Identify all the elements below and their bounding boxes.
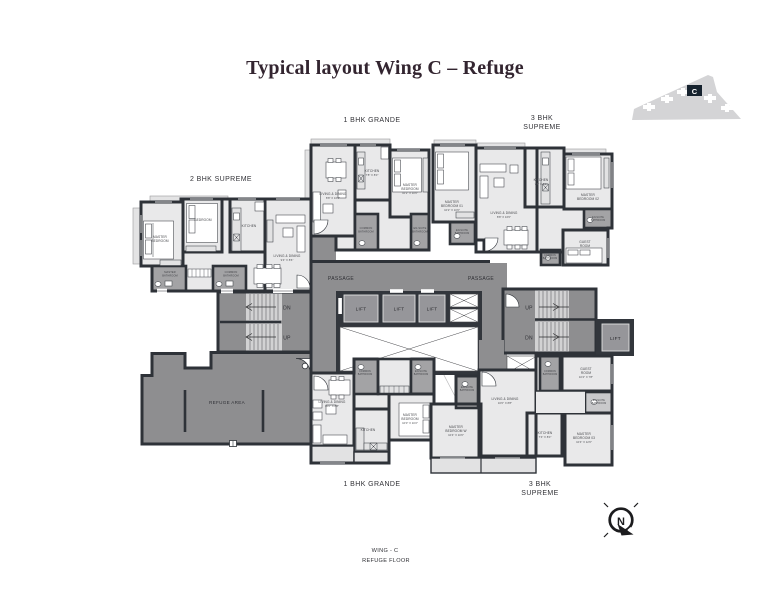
svg-text:BATHROOM: BATHROOM bbox=[591, 219, 605, 222]
svg-text:COMMON: COMMON bbox=[225, 270, 238, 274]
svg-text:1 BHK GRANDE: 1 BHK GRANDE bbox=[344, 117, 401, 124]
svg-text:10'4" X 12'0": 10'4" X 12'0" bbox=[576, 440, 592, 444]
svg-text:REFUGE AREA: REFUGE AREA bbox=[209, 400, 246, 405]
svg-text:10'2" X 10'0": 10'2" X 10'0" bbox=[402, 191, 418, 195]
svg-text:UP: UP bbox=[283, 336, 291, 342]
svg-text:UP: UP bbox=[525, 306, 533, 312]
svg-text:10'4" X 7'8": 10'4" X 7'8" bbox=[579, 375, 593, 379]
svg-text:COMMON: COMMON bbox=[360, 226, 373, 230]
svg-text:3 BHK: 3 BHK bbox=[529, 481, 551, 488]
svg-text:LIFT: LIFT bbox=[394, 307, 405, 312]
svg-text:8'8" X 16'0": 8'8" X 16'0" bbox=[497, 215, 511, 219]
svg-text:DN: DN bbox=[525, 336, 533, 342]
svg-text:BATHROOM: BATHROOM bbox=[358, 373, 372, 376]
svg-text:BATHROOM: BATHROOM bbox=[414, 373, 428, 376]
svg-text:EN-SUITE: EN-SUITE bbox=[414, 226, 427, 230]
svg-text:10'0" X 10'2": 10'0" X 10'2" bbox=[402, 421, 418, 425]
svg-text:PASSAGE: PASSAGE bbox=[328, 276, 355, 282]
svg-text:10'2" X 10'0": 10'2" X 10'0" bbox=[444, 208, 460, 212]
svg-text:BATHROOM: BATHROOM bbox=[455, 232, 469, 235]
svg-text:C: C bbox=[692, 87, 698, 96]
svg-text:3 BHK: 3 BHK bbox=[531, 115, 553, 122]
svg-text:BATHROOM: BATHROOM bbox=[460, 389, 474, 392]
svg-text:BEDROOM 02: BEDROOM 02 bbox=[577, 197, 599, 201]
svg-text:BEDROOM: BEDROOM bbox=[151, 239, 168, 243]
svg-text:9'4" X 8'6": 9'4" X 8'6" bbox=[281, 258, 294, 262]
svg-text:1 BHK GRANDE: 1 BHK GRANDE bbox=[344, 481, 401, 488]
svg-text:BATHROOM: BATHROOM bbox=[358, 230, 374, 234]
svg-text:MASTER: MASTER bbox=[164, 270, 175, 274]
svg-text:BATHROOM: BATHROOM bbox=[412, 230, 428, 234]
svg-text:LIFT: LIFT bbox=[427, 307, 438, 312]
svg-text:BEDROOM: BEDROOM bbox=[194, 218, 211, 222]
svg-text:N: N bbox=[617, 516, 625, 528]
svg-text:WING - C: WING - C bbox=[372, 548, 399, 554]
svg-text:16'0" X 8'8": 16'0" X 8'8" bbox=[325, 404, 339, 408]
svg-text:SUPREME: SUPREME bbox=[521, 490, 558, 497]
svg-text:DN: DN bbox=[283, 306, 291, 312]
svg-text:8'8" X 16'0": 8'8" X 16'0" bbox=[326, 196, 340, 200]
svg-text:KITCHEN: KITCHEN bbox=[242, 224, 257, 228]
svg-text:BATHROOM: BATHROOM bbox=[543, 257, 557, 260]
svg-text:7'4" X 8'0": 7'4" X 8'0" bbox=[539, 435, 552, 439]
svg-text:7'8" X 8'0": 7'8" X 8'0" bbox=[366, 173, 379, 177]
svg-text:LIFT: LIFT bbox=[356, 307, 367, 312]
svg-text:KITCHEN: KITCHEN bbox=[361, 428, 376, 432]
svg-text:BATHROOM: BATHROOM bbox=[543, 373, 557, 376]
svg-text:BATHROOM: BATHROOM bbox=[223, 274, 239, 278]
svg-text:ROOM: ROOM bbox=[580, 244, 591, 248]
svg-text:2 BHK SUPREME: 2 BHK SUPREME bbox=[190, 176, 252, 183]
svg-text:16'0" X 8'8": 16'0" X 8'8" bbox=[498, 401, 512, 405]
svg-text:PASSAGE: PASSAGE bbox=[468, 276, 495, 282]
svg-text:10'4" X 10'0": 10'4" X 10'0" bbox=[448, 433, 464, 437]
svg-text:LIFT: LIFT bbox=[610, 336, 621, 341]
svg-text:7'8" X 8'0": 7'8" X 8'0" bbox=[535, 182, 548, 186]
svg-text:BATHROOM: BATHROOM bbox=[162, 274, 178, 278]
svg-text:SUPREME: SUPREME bbox=[523, 124, 560, 131]
svg-text:REFUGE FLOOR: REFUGE FLOOR bbox=[362, 558, 410, 564]
svg-text:Typical layout Wing C – Refuge: Typical layout Wing C – Refuge bbox=[246, 57, 524, 79]
svg-text:BATHROOM: BATHROOM bbox=[592, 402, 606, 405]
